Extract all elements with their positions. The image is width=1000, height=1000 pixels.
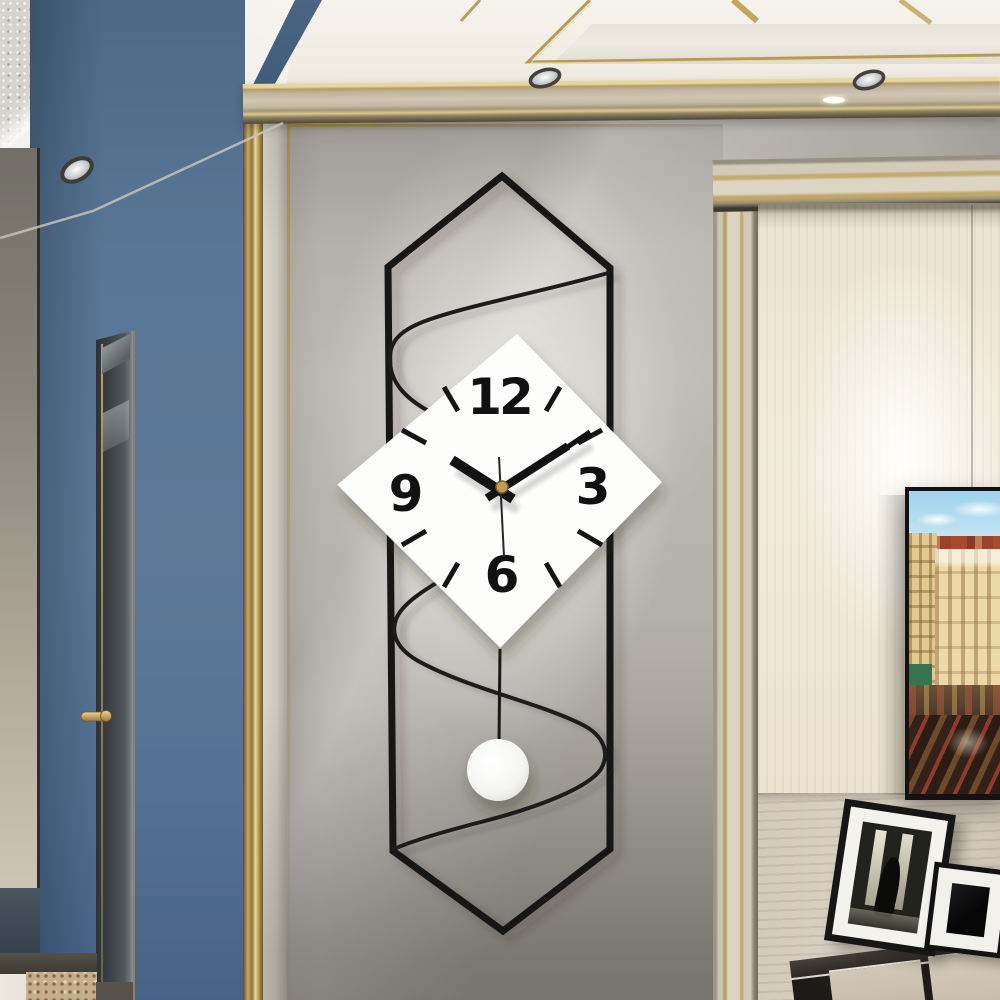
frame-photo-dark	[946, 883, 990, 937]
blue-accent-wall	[30, 0, 245, 1000]
door-header	[102, 334, 130, 374]
wall-vignette	[263, 124, 723, 1000]
doorway-jamb	[713, 170, 760, 1000]
artwork-building-main	[935, 549, 1000, 707]
photo-frame-small	[924, 862, 1000, 959]
mosaic-floor-strip	[26, 972, 97, 1000]
door-gold-inlay	[101, 344, 103, 994]
frame-mat	[930, 867, 1000, 953]
gold-corner-trim	[243, 94, 263, 1000]
floor-under-door	[96, 982, 133, 1000]
venice-artwork-screen	[905, 487, 1000, 800]
crown-molding	[243, 77, 1000, 124]
frame-photo	[848, 821, 932, 933]
room-scene: 12 3 6 9	[0, 0, 1000, 1000]
interior-door	[96, 330, 135, 1000]
tv-shadow	[876, 495, 906, 795]
hallway-panel	[0, 148, 40, 892]
door-sheen	[103, 400, 129, 452]
artwork-image	[909, 491, 1000, 794]
ceiling-coffer-shade	[552, 24, 1000, 64]
artwork-water-glint	[947, 727, 989, 757]
